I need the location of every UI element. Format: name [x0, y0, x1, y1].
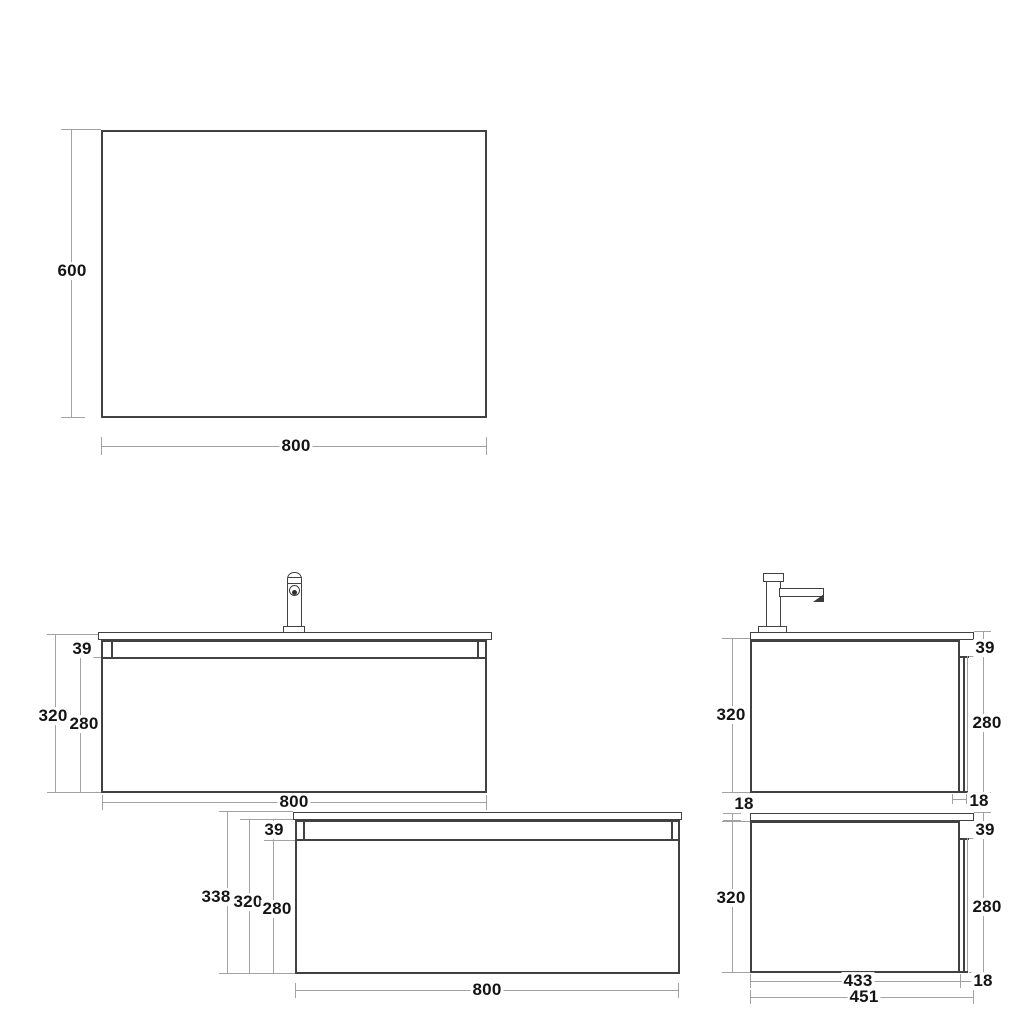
mirror-height-label: 600: [56, 262, 89, 280]
faucet-detail-line: [288, 583, 301, 584]
faucet-aerator-dot: [292, 590, 297, 595]
basin-rim-line: [111, 641, 113, 658]
apron-height-label: 39: [973, 821, 996, 839]
top-panel-thickness-label: 18: [732, 795, 755, 813]
ext-tick: [295, 983, 296, 998]
overall-depth-label: 451: [848, 988, 881, 1006]
ext-tick: [219, 811, 293, 812]
dim-line-vertical: [732, 813, 733, 821]
faucet-detail-line: [288, 577, 301, 578]
ext-tick: [264, 840, 295, 841]
ext-tick: [722, 638, 750, 639]
ext-tick: [219, 973, 295, 974]
cabinet-outline: [750, 640, 960, 793]
ext-tick: [722, 821, 750, 822]
mirror-outline: [101, 130, 487, 418]
width-label: 800: [471, 981, 504, 999]
ext-tick: [750, 990, 751, 1004]
ext-tick: [486, 795, 487, 810]
rim-lip-line: [960, 971, 968, 973]
width-label: 800: [278, 793, 311, 811]
basin-rim-line: [671, 821, 673, 839]
carcass-height-label: 280: [971, 714, 1004, 732]
countertop-slab: [750, 632, 974, 640]
dim-line-horizontal: [952, 799, 967, 800]
apron-height-label: 39: [70, 640, 93, 658]
ext-tick: [101, 437, 102, 455]
apron-line: [297, 839, 678, 841]
ext-tick: [61, 417, 85, 418]
apron-height-label: 39: [262, 821, 285, 839]
ext-tick: [973, 990, 974, 1004]
countertop-slab: [750, 813, 974, 821]
ext-tick: [722, 792, 750, 793]
ext-tick: [722, 972, 750, 973]
basin-rim-line: [477, 641, 479, 658]
dim-line-vertical: [273, 819, 274, 974]
ext-tick: [750, 974, 751, 988]
cabinet-outline: [101, 640, 487, 793]
overall-height-label: 338: [200, 888, 233, 906]
basin-rim-line: [303, 821, 305, 839]
rim-lip-line: [963, 838, 965, 973]
rim-lip-line: [963, 656, 965, 793]
mirror-width-label: 800: [280, 437, 313, 455]
countertop-slab: [98, 632, 492, 640]
apron-height-label: 39: [973, 639, 996, 657]
apron-line: [103, 657, 485, 659]
ext-tick: [678, 983, 679, 998]
rim-lip-line: [967, 838, 968, 973]
faucet-spout: [779, 588, 824, 597]
carcass-height-label: 280: [261, 900, 294, 918]
ext-tick: [102, 795, 103, 810]
cabinet-outline: [750, 821, 960, 973]
faucet-body: [287, 572, 302, 628]
ext-tick: [960, 974, 961, 988]
rim-lip-line: [967, 656, 968, 793]
total-height-label: 320: [37, 707, 70, 725]
technical-drawing: 600 800 39 320 280 800: [0, 0, 1024, 1024]
ext-tick: [61, 129, 101, 130]
carcass-height-label: 280: [68, 715, 101, 733]
countertop-slab: [293, 812, 682, 820]
total-height-label: 320: [715, 706, 748, 724]
top-overhang-label: 18: [971, 972, 994, 990]
carcass-height-label: 280: [971, 898, 1004, 916]
total-height-label: 320: [715, 889, 748, 907]
cabinet-outline: [295, 820, 680, 974]
ext-tick: [486, 437, 487, 455]
back-lip-thickness-label: 18: [967, 792, 990, 810]
ext-tick: [952, 794, 953, 804]
